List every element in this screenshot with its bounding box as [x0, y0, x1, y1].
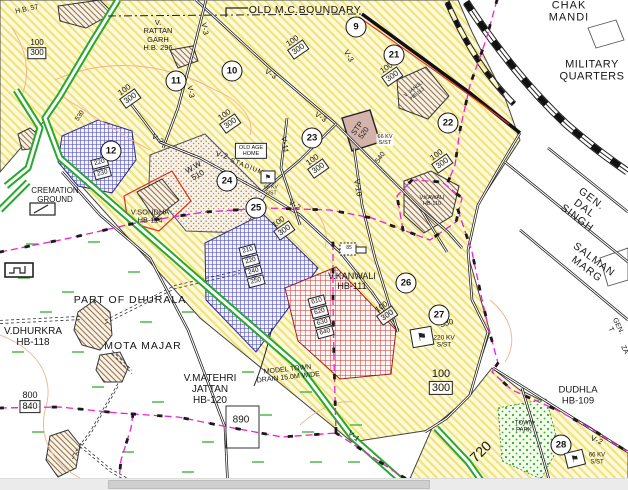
sector-circle-21: 21 — [384, 45, 405, 66]
label-mota-majar: MOTA MAJAR — [104, 341, 181, 353]
label-za: ZA — [619, 344, 628, 355]
road-label-v-1-11: V-1 — [346, 428, 362, 443]
plot-ratio-top: 100 — [27, 39, 46, 47]
label-v-jandli: V. JANDLI HB-113 — [404, 81, 429, 104]
sector-circle-11: 11 — [166, 71, 187, 92]
label-old-mc-boundary: OLD M.C.BOUNDARY — [249, 5, 361, 17]
label-stadium: STADIUM — [229, 157, 265, 177]
sector-circle-24: 24 — [217, 171, 238, 192]
plot-ratio-label-2: 100300 — [214, 106, 241, 133]
label-v-sondha: V.SONDHA HB-114 — [131, 209, 170, 226]
label-rattan-garh: V. RATTAN GARH H.B. 296 — [143, 19, 172, 53]
plot-ratio-label-1: 100300 — [114, 81, 141, 108]
plot-number: 620 — [310, 305, 329, 319]
sector-circle-9: 9 — [346, 17, 367, 38]
plot-ratio-bottom: 840 — [19, 401, 40, 413]
plot-number: 630 — [313, 315, 332, 329]
plot-ratio-bottom: 300 — [287, 39, 309, 59]
road-label-v-3-0: V-3 — [199, 22, 210, 36]
label-ww-510: W.W 510 — [184, 160, 208, 184]
plot-ratio-label-7: 100300 — [302, 151, 329, 178]
plot-number: 210 — [238, 243, 257, 257]
road-label-v-3-4: V-3 — [313, 110, 329, 125]
label-cremation-ground: CREMATION GROUND — [31, 187, 78, 205]
plot-ratio-top: 100 — [282, 32, 303, 50]
label-salman-marg: SALMAN MARG — [563, 241, 616, 289]
label-66kv-sst-28: 66 KV S/ST — [589, 452, 605, 465]
road-label-v-2-7: V-2 — [287, 198, 303, 213]
label-530-substation: 530 — [439, 318, 454, 330]
plot-ratio-top: 100 — [268, 213, 289, 231]
horizontal-scrollbar-track[interactable] — [0, 478, 628, 490]
label-720: 720 — [467, 438, 495, 466]
plot-ratio-label-5: 100300 — [426, 146, 453, 173]
plot-ratio-top: 100 — [214, 106, 235, 124]
label-plot-85: 85 — [346, 246, 352, 252]
plot-number: 220 — [90, 156, 109, 170]
plot-ratio-top: 100 — [371, 298, 392, 316]
plot-ratio-bottom: 300 — [219, 113, 241, 133]
plot-ratio-bottom: 300 — [376, 305, 398, 325]
sector-circle-10: 10 — [222, 61, 243, 82]
sector-circle-28: 28 — [551, 435, 572, 456]
label-hb57: H.B. 57 — [15, 4, 39, 17]
road-label-v-2-5: V-2 — [150, 132, 166, 147]
plot-ratio-top: 100 — [302, 151, 323, 169]
road-label-v-10-10: V-10 — [352, 179, 364, 198]
plot-ratio-top: 100 — [114, 81, 135, 99]
label-gen-dal-singh: GEN. DAL SINGH — [556, 182, 612, 237]
label-military-quarters: MILITARY QUARTERS — [560, 59, 625, 84]
substation-flag-icon-1: ⚑ — [564, 449, 586, 470]
horizontal-scrollbar-thumb[interactable] — [108, 480, 430, 489]
map-viewport[interactable]: H.B. 57OLD M.C.BOUNDARYCHAK MANDIMILITAR… — [0, 0, 628, 490]
plot-stack-blue-central: 210220240250 — [238, 242, 266, 289]
plot-number: 640 — [316, 326, 335, 340]
plot-ratio-bottom: 300 — [27, 48, 46, 59]
plot-ratio-bottom: 300 — [431, 153, 453, 173]
label-66kv-sst-stadium: 66 KV S/ST — [264, 185, 278, 196]
sector-circle-12: 12 — [101, 141, 122, 162]
plot-number: 220 — [241, 254, 260, 268]
label-v-dhurkra: V.DHURKRA HB-118 — [4, 326, 62, 348]
plot-ratio-top: 800 — [19, 391, 40, 400]
road-label-v-11-9: V-11 — [280, 136, 291, 154]
plot-ratio-top: 100 — [429, 369, 453, 381]
plot-number: 240 — [244, 264, 263, 278]
map-labels-layer: H.B. 57OLD M.C.BOUNDARYCHAK MANDIMILITAR… — [0, 0, 628, 490]
road-label-v-3-3: V-3 — [342, 48, 356, 64]
label-dudhla: DUDHLA HB-109 — [558, 385, 597, 406]
label-chak-mandi: CHAK MANDI — [540, 0, 599, 24]
label-gen-t: GEN. T — [603, 317, 625, 339]
plot-ratio-top: 100 — [376, 59, 397, 77]
plot-ratio-label-8: 100300 — [371, 298, 398, 325]
label-v-matehri: V.MATEHRI JATTAN HB-120 — [184, 373, 237, 407]
sector-circle-22: 22 — [438, 113, 459, 134]
sector-circle-27: 27 — [429, 305, 450, 326]
label-530-circle12: 530 — [74, 109, 86, 122]
sector-circle-25: 25 — [246, 198, 267, 219]
label-town-park: TOWN PARK — [515, 420, 533, 433]
plot-ratio-bottom: 300 — [381, 66, 403, 86]
plot-ratio-label-10: 800840 — [19, 391, 40, 413]
plot-number: 230 — [93, 166, 112, 180]
plot-ratio-label-6: 100300 — [268, 213, 295, 240]
label-890: 890 — [233, 414, 250, 425]
sector-circle-26: 26 — [396, 273, 417, 294]
plot-ratio-label-4: 100300 — [376, 59, 403, 86]
plot-number: 250 — [247, 275, 266, 289]
label-540: 540 — [374, 151, 387, 165]
plot-ratio-label-3: 100300 — [282, 32, 309, 59]
plot-ratio-label-9: 100300 — [429, 369, 453, 395]
label-v-kawali: V.KAWALI HB-110 — [419, 195, 444, 207]
road-label-v-2-6: V-2 — [215, 149, 230, 161]
plot-number: 610 — [307, 294, 326, 308]
plot-ratio-bottom: 300 — [273, 220, 295, 240]
label-stp-520: STP 520 — [350, 120, 372, 142]
sector-circle-23: 23 — [302, 128, 323, 149]
plot-ratio-bottom: 300 — [429, 380, 453, 395]
plot-stack-red: 610620630640 — [307, 293, 335, 340]
substation-flag-icon-2: ⚑ — [261, 170, 276, 183]
plot-ratio-bottom: 300 — [307, 158, 329, 178]
label-old-age-home: OLD AGE HOME — [235, 143, 267, 159]
label-v-kanwali: V.KANWALI HB-111 — [328, 271, 376, 291]
plot-stack-blue-12: 220230 — [90, 155, 112, 181]
substation-flag-icon-0: ⚑ — [410, 326, 435, 349]
label-66kv-sst-stp: 66 KV S/ST — [377, 134, 394, 146]
label-220kv-sst: 220 KV S/ST — [433, 335, 454, 350]
road-label-v-2-8: V-2 — [589, 433, 604, 446]
label-part-of-dhurala: PART OF DHURALA — [74, 295, 186, 307]
label-model-town-drain: MODEL TOWN DRAIN 15.0M WIDE — [256, 363, 321, 385]
road-label-v-3-2: V-3 — [185, 85, 196, 99]
plot-ratio-bottom: 300 — [119, 88, 141, 108]
plot-ratio-label-0: 100300 — [27, 39, 46, 59]
plot-ratio-top: 100 — [426, 146, 447, 164]
road-label-v-3-1: V-3 — [263, 67, 279, 82]
